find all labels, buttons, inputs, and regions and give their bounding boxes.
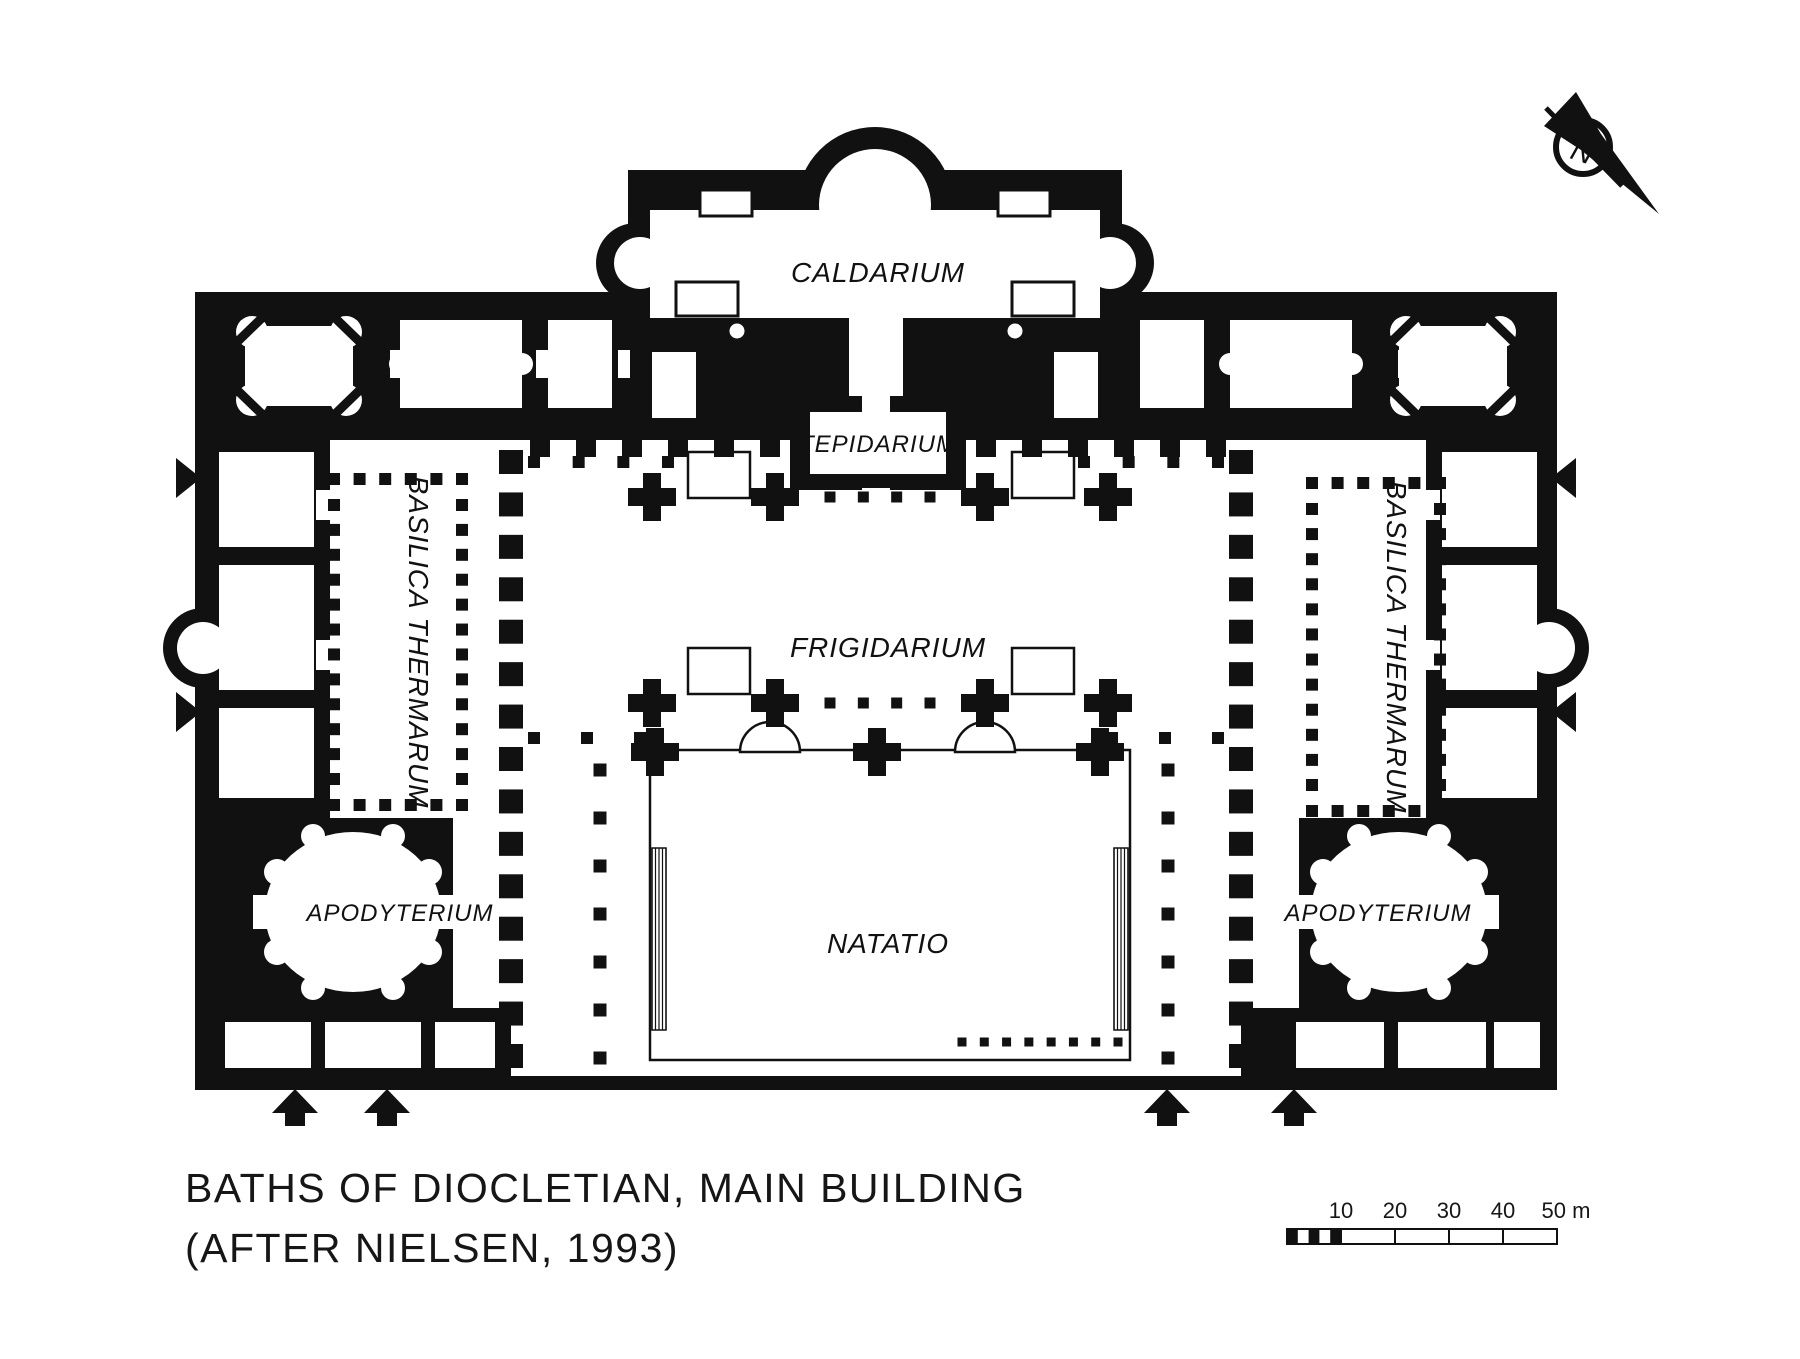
room-label-tepidarium: TEPIDARIUM <box>799 431 957 458</box>
scanned-floor-plan-page: BASILICA THERMARUM BASILICA THERMARUM <box>0 0 1800 1359</box>
scale-end-label: 50 m <box>1542 1198 1591 1223</box>
plan-title: BATHS OF DIOCLETIAN, MAIN BUILDING <box>185 1165 1026 1211</box>
west-outer-wall <box>195 292 211 1090</box>
south-outer-wall <box>195 1076 1557 1090</box>
room-label-frigidarium: FRIGIDARIUM <box>790 632 986 663</box>
room-label-basilica-right: BASILICA THERMARUM <box>1381 481 1412 814</box>
scale-tick-20: 20 <box>1383 1198 1407 1223</box>
room-label-apodyterium-right: APODYTERIUM <box>1282 900 1471 927</box>
plan-subtitle: (AFTER NIELSEN, 1993) <box>185 1225 679 1271</box>
room-label-natatio: NATATIO <box>827 928 949 959</box>
east-outer-wall <box>1541 292 1557 1090</box>
scale-tick-10: 10 <box>1329 1198 1353 1223</box>
floor-plan: BASILICA THERMARUM BASILICA THERMARUM <box>0 0 1800 1359</box>
scale-bar: 10 20 30 40 50 m <box>1287 1198 1590 1244</box>
natatio-pool <box>650 722 1130 1060</box>
east-pier-wall <box>1229 450 1253 1068</box>
room-label-apodyterium-left: APODYTERIUM <box>304 900 493 927</box>
room-label-basilica-left: BASILICA THERMARUM <box>403 476 434 809</box>
room-label-caldarium: CALDARIUM <box>791 257 965 288</box>
scale-tick-30: 30 <box>1437 1198 1461 1223</box>
scale-tick-40: 40 <box>1491 1198 1515 1223</box>
west-pier-wall <box>499 450 523 1068</box>
